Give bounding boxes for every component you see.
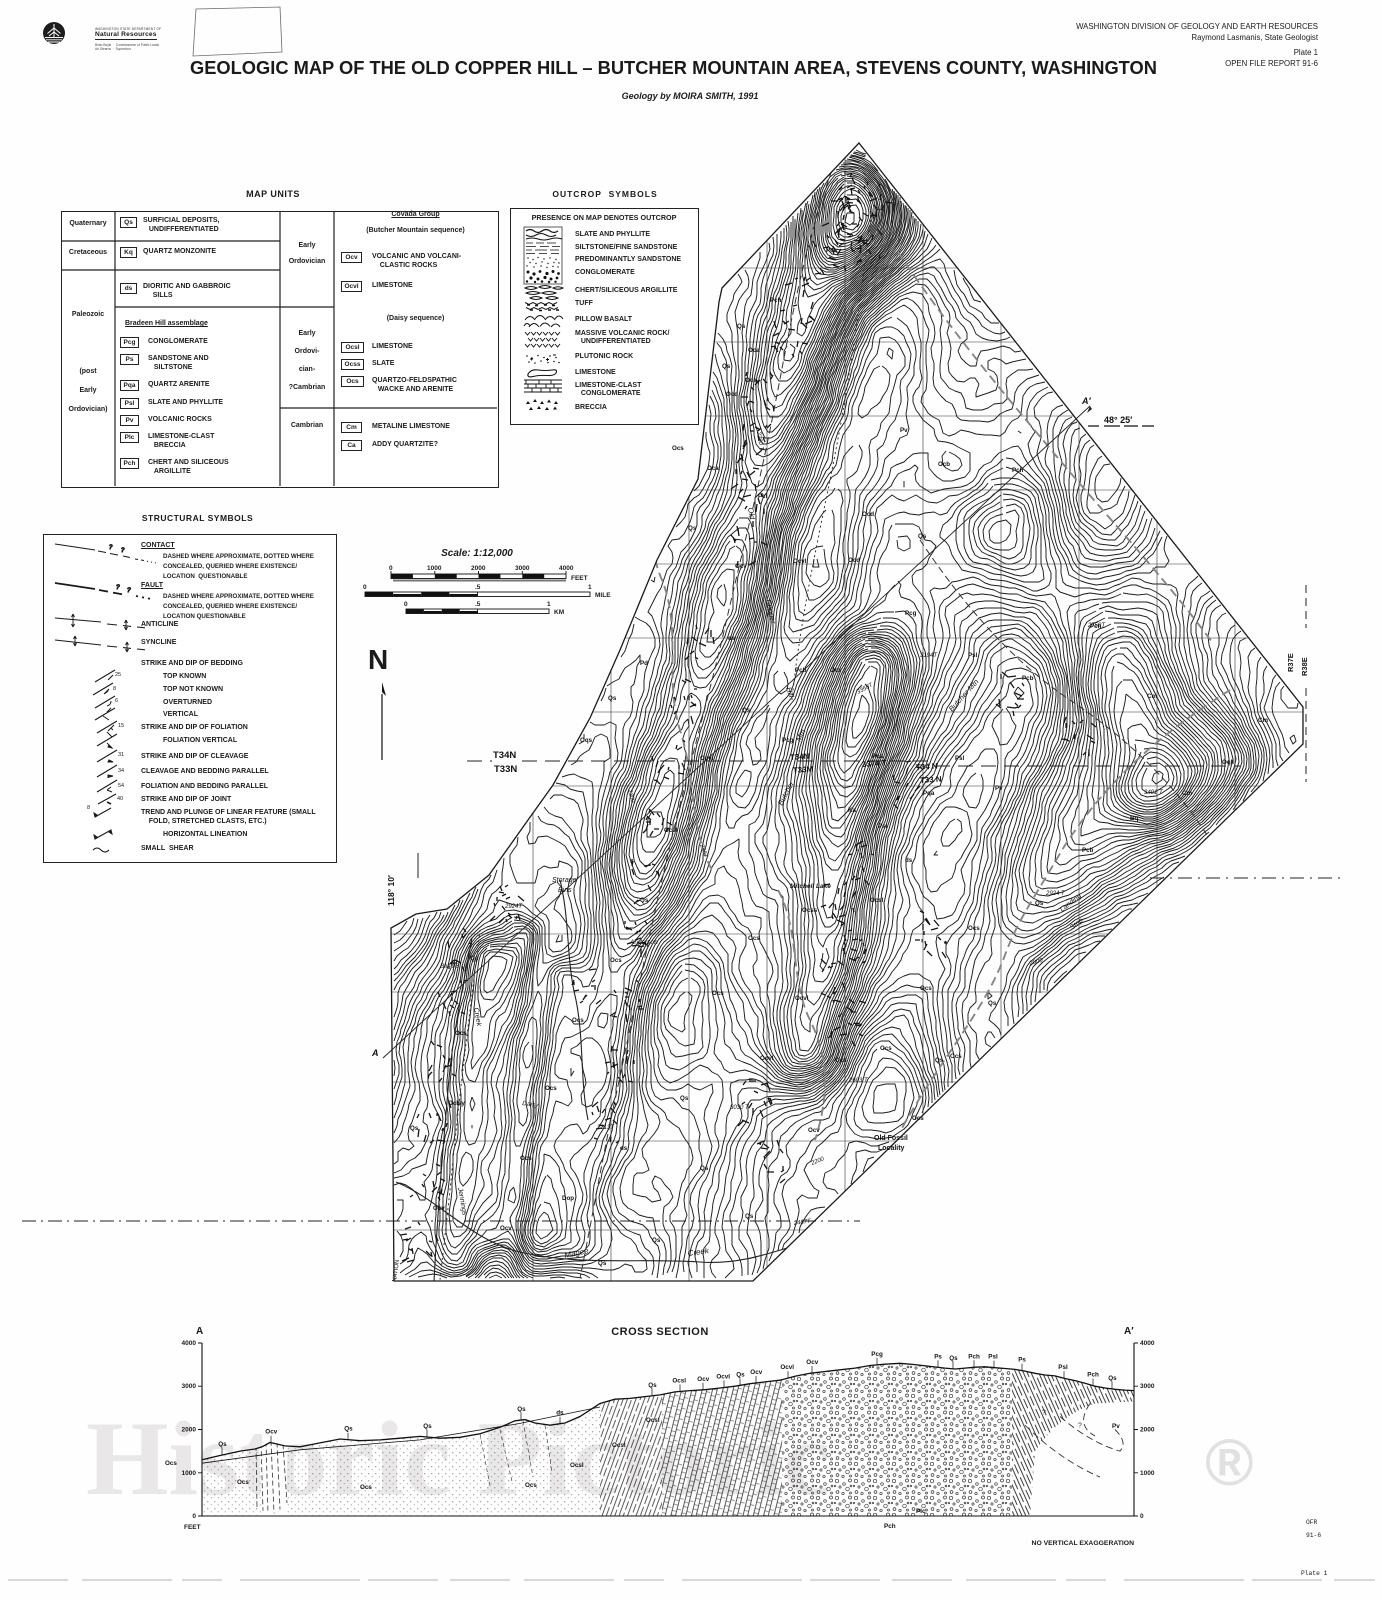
svg-text:3358T: 3358T bbox=[856, 682, 875, 696]
svg-text:Ocsl: Ocsl bbox=[870, 897, 884, 904]
svg-text:3374 T: 3374 T bbox=[862, 758, 888, 769]
svg-text:Pcg: Pcg bbox=[782, 737, 794, 744]
svg-text:Ocv: Ocv bbox=[808, 1127, 820, 1134]
svg-text:0: 0 bbox=[363, 584, 367, 591]
svg-text:8: 8 bbox=[87, 805, 90, 811]
svg-text:T33M: T33M bbox=[793, 765, 814, 775]
svg-text:ds: ds bbox=[556, 1410, 564, 1417]
svg-text:Oca: Oca bbox=[745, 377, 757, 384]
svg-text:Ocs: Ocs bbox=[455, 1030, 467, 1037]
svg-text:Ocs: Ocs bbox=[950, 1053, 962, 1060]
svg-text:Pch: Pch bbox=[770, 297, 782, 304]
svg-text:2000: 2000 bbox=[182, 1427, 197, 1434]
svg-text:Qs: Qs bbox=[722, 363, 731, 370]
svg-text:118° 10′: 118° 10′ bbox=[386, 875, 396, 906]
svg-text:Ocs: Ocs bbox=[237, 1479, 249, 1486]
svg-text:0: 0 bbox=[1140, 1513, 1144, 1520]
svg-text:KM: KM bbox=[554, 609, 564, 616]
svg-text:2000: 2000 bbox=[471, 565, 486, 572]
svg-text:3000: 3000 bbox=[1140, 1383, 1155, 1390]
svg-text:31: 31 bbox=[118, 752, 124, 758]
svg-text:R37E: R37E bbox=[1286, 653, 1295, 672]
svg-text:Ocs: Ocs bbox=[920, 985, 932, 992]
svg-text:Pcl: Pcl bbox=[826, 247, 836, 254]
svg-text:Ocvl: Ocvl bbox=[780, 1364, 794, 1371]
svg-text:Ocv: Ocv bbox=[500, 1225, 512, 1232]
svg-text:Ocs: Ocs bbox=[968, 925, 980, 932]
svg-text:34: 34 bbox=[118, 768, 124, 774]
svg-text:?: ? bbox=[1042, 1409, 1046, 1416]
svg-text:Cm: Cm bbox=[1147, 693, 1157, 700]
svg-text:Ocvl: Ocvl bbox=[664, 827, 678, 834]
svg-text:Locality: Locality bbox=[878, 1145, 905, 1152]
svg-text:1: 1 bbox=[588, 584, 592, 591]
svg-text:Qs: Qs bbox=[949, 1355, 958, 1362]
svg-text:A′: A′ bbox=[1081, 396, 1091, 406]
svg-text:Ocvl: Ocvl bbox=[700, 755, 714, 762]
svg-text:?: ? bbox=[116, 584, 120, 591]
svg-text:Ocv: Ocv bbox=[830, 667, 842, 674]
svg-text:Pd: Pd bbox=[640, 660, 648, 667]
svg-text:Ocvi: Ocvi bbox=[795, 995, 809, 1002]
svg-text:25: 25 bbox=[115, 672, 121, 678]
svg-text:Storage: Storage bbox=[552, 877, 577, 884]
svg-text:Ocs: Ocs bbox=[748, 935, 760, 942]
svg-text:Qs: Qs bbox=[344, 1426, 353, 1433]
svg-text:Psl: Psl bbox=[1058, 1364, 1068, 1371]
svg-text:Ps: Ps bbox=[1018, 1357, 1026, 1364]
svg-text:Qs: Qs bbox=[470, 955, 479, 962]
svg-text:Pch: Pch bbox=[884, 1523, 896, 1530]
svg-text:Ocs: Ocs bbox=[525, 1482, 537, 1489]
svg-text:3401 T: 3401 T bbox=[1144, 790, 1164, 796]
svg-text:15: 15 bbox=[118, 723, 124, 729]
svg-text:Ocs: Ocs bbox=[912, 1115, 924, 1122]
svg-text:Cm: Cm bbox=[1258, 717, 1268, 724]
svg-text:Cm: Cm bbox=[1182, 790, 1192, 797]
svg-text:2924T: 2924T bbox=[504, 904, 523, 910]
svg-text:2758T: 2758T bbox=[1087, 623, 1106, 629]
svg-text:Pcb: Pcb bbox=[1022, 675, 1034, 682]
svg-text:Psl: Psl bbox=[878, 823, 888, 830]
svg-text:?: ? bbox=[109, 545, 113, 551]
svg-text:Qs: Qs bbox=[410, 1125, 419, 1132]
svg-text:Ocs: Ocs bbox=[572, 1017, 584, 1024]
svg-text:Pqa: Pqa bbox=[923, 790, 935, 797]
svg-text:Qs: Qs bbox=[680, 1095, 689, 1102]
svg-text:3030 T: 3030 T bbox=[730, 1105, 750, 1111]
svg-text:Oca: Oca bbox=[748, 347, 760, 354]
svg-text:Ocv: Ocv bbox=[806, 1359, 818, 1366]
svg-text:Pcl: Pcl bbox=[758, 493, 768, 500]
svg-text:Pcb: Pcb bbox=[795, 667, 807, 674]
svg-text:Ocs: Ocs bbox=[165, 1460, 177, 1467]
svg-text:Qs: Qs bbox=[700, 1165, 709, 1172]
svg-text:2924 T: 2924 T bbox=[1045, 891, 1066, 897]
svg-text:Qs: Qs bbox=[598, 1260, 607, 1267]
svg-text:Mitchell Lake: Mitchell Lake bbox=[790, 883, 831, 890]
svg-text:1000: 1000 bbox=[1140, 1470, 1155, 1477]
svg-text:Oclsy: Oclsy bbox=[448, 1100, 465, 1107]
svg-text:T33 N: T33 N bbox=[920, 774, 943, 785]
svg-text:Ocs: Ocs bbox=[545, 1085, 557, 1092]
svg-text:Qs: Qs bbox=[935, 1057, 944, 1064]
svg-text:40: 40 bbox=[117, 796, 123, 802]
svg-text:T34N: T34N bbox=[790, 752, 810, 762]
svg-text:0: 0 bbox=[192, 1513, 196, 1520]
svg-text:Old Fossil: Old Fossil bbox=[874, 1135, 908, 1142]
svg-text:Ocv: Ocv bbox=[697, 1376, 709, 1383]
svg-text:Psl: Psl bbox=[968, 652, 978, 659]
svg-text:2603 T: 2603 T bbox=[848, 1078, 869, 1084]
svg-text:T34 N: T34 N bbox=[916, 761, 939, 772]
svg-text:Ocv: Ocv bbox=[433, 1205, 445, 1212]
svg-text:T34N: T34N bbox=[493, 750, 516, 761]
svg-text:Qs: Qs bbox=[688, 525, 697, 532]
svg-text:6: 6 bbox=[115, 698, 118, 704]
svg-text:Qs: Qs bbox=[1035, 900, 1044, 907]
svg-text:Daisy: Daisy bbox=[522, 1100, 540, 1109]
svg-text:Ocs: Ocs bbox=[835, 1057, 847, 1064]
svg-text:Ocs: Ocs bbox=[360, 1484, 372, 1491]
svg-text:Qs: Qs bbox=[608, 695, 617, 702]
svg-text:Pv: Pv bbox=[1112, 1423, 1120, 1430]
svg-text:Ocd: Ocd bbox=[726, 391, 738, 398]
svg-text:?: ? bbox=[121, 548, 125, 554]
svg-text:Ocb: Ocb bbox=[938, 461, 950, 468]
svg-text:Anderson: Anderson bbox=[629, 939, 658, 946]
svg-text:54: 54 bbox=[118, 783, 124, 789]
svg-text:4000: 4000 bbox=[1140, 1340, 1155, 1347]
svg-text:Ocs: Ocs bbox=[880, 1045, 892, 1052]
svg-text:.5: .5 bbox=[475, 584, 481, 591]
svg-text:0: 0 bbox=[389, 565, 393, 572]
svg-text:Ocsl: Ocsl bbox=[570, 1462, 584, 1469]
svg-text:ds: ds bbox=[905, 857, 913, 864]
svg-text:Qs: Qs bbox=[736, 1371, 745, 1378]
svg-text:Ocv: Ocv bbox=[265, 1429, 277, 1436]
svg-text:Ocs: Ocs bbox=[712, 990, 724, 997]
svg-text:Pcg: Pcg bbox=[905, 610, 917, 617]
svg-text:1: 1 bbox=[547, 601, 551, 608]
svg-text:3000: 3000 bbox=[515, 565, 530, 572]
svg-text:Ocvl: Ocvl bbox=[760, 1055, 774, 1062]
svg-text:Ocvl: Ocvl bbox=[716, 1374, 730, 1381]
svg-text:2000: 2000 bbox=[1140, 1427, 1155, 1434]
svg-text:FEET: FEET bbox=[184, 1524, 201, 1531]
svg-text:Ocv: Ocv bbox=[750, 1369, 762, 1376]
svg-text:FEET: FEET bbox=[571, 575, 588, 582]
svg-text:A: A bbox=[371, 1048, 379, 1058]
svg-text:ds: ds bbox=[728, 635, 736, 642]
svg-text:Qs: Qs bbox=[745, 1213, 754, 1220]
svg-text:4000: 4000 bbox=[182, 1340, 197, 1347]
svg-text:Ocs: Ocs bbox=[672, 445, 684, 452]
svg-text:.5: .5 bbox=[475, 601, 481, 608]
svg-text:Qs: Qs bbox=[988, 1000, 997, 1007]
svg-text:2313T: 2313T bbox=[596, 1125, 615, 1131]
svg-text:Ocsl: Ocsl bbox=[646, 1417, 660, 1424]
svg-text:Qs: Qs bbox=[640, 897, 649, 904]
svg-text:Plc: Plc bbox=[916, 1508, 926, 1515]
svg-text:1000: 1000 bbox=[427, 565, 442, 572]
svg-text:8: 8 bbox=[113, 686, 116, 692]
svg-text:Bins: Bins bbox=[558, 887, 572, 894]
svg-text:Ka: Ka bbox=[848, 807, 856, 814]
svg-text:Oqll: Oqll bbox=[1222, 759, 1234, 766]
svg-text:Ocd: Ocd bbox=[848, 557, 860, 564]
svg-text:Qs: Qs bbox=[918, 533, 927, 540]
svg-text:48° 25′: 48° 25′ bbox=[1104, 415, 1132, 425]
svg-text:Ocd: Ocd bbox=[862, 511, 874, 518]
svg-text:Pch: Pch bbox=[1087, 1372, 1099, 1379]
svg-text:4000: 4000 bbox=[559, 565, 574, 572]
svg-text:Qs: Qs bbox=[517, 1406, 526, 1413]
svg-text:Ocss: Ocss bbox=[802, 907, 818, 914]
svg-text:Ocs: Ocs bbox=[520, 1155, 532, 1162]
svg-text:Ocs: Ocs bbox=[610, 957, 622, 964]
svg-text:Jennings: Jennings bbox=[456, 1186, 468, 1216]
svg-text:Pcb: Pcb bbox=[1082, 847, 1094, 854]
svg-text:Pv: Pv bbox=[995, 785, 1003, 792]
svg-text:3000: 3000 bbox=[182, 1383, 197, 1390]
svg-text:Bq: Bq bbox=[1130, 815, 1138, 822]
svg-text:Ps: Ps bbox=[934, 1353, 942, 1360]
svg-text:Qs: Qs bbox=[423, 1423, 432, 1430]
svg-text:?: ? bbox=[127, 587, 131, 594]
svg-text:BM 96: BM 96 bbox=[440, 963, 459, 970]
svg-text:Ocvl: Ocvl bbox=[793, 558, 807, 565]
svg-text:Qs: Qs bbox=[1108, 1375, 1117, 1382]
svg-text:3194T: 3194T bbox=[920, 653, 938, 659]
svg-text:2800: 2800 bbox=[1028, 958, 1044, 967]
svg-text:Oqs: Oqs bbox=[580, 737, 593, 744]
svg-text:Qs: Qs bbox=[742, 707, 751, 714]
svg-text:R38E: R38E bbox=[1300, 657, 1309, 676]
svg-text:2967: 2967 bbox=[698, 843, 709, 859]
svg-text:Qs: Qs bbox=[652, 1237, 661, 1244]
svg-text:Qs: Qs bbox=[218, 1441, 227, 1448]
svg-text:Pch: Pch bbox=[968, 1353, 980, 1360]
svg-text:Ocsl: Ocsl bbox=[672, 1377, 686, 1384]
svg-text:0: 0 bbox=[404, 601, 408, 608]
svg-text:Pv: Pv bbox=[900, 427, 908, 434]
svg-text:T33N: T33N bbox=[494, 764, 517, 775]
svg-text:Hill: Hill bbox=[784, 686, 796, 699]
svg-text:Dop: Dop bbox=[562, 1195, 574, 1202]
svg-text:MILE: MILE bbox=[595, 592, 611, 599]
svg-text:Oca: Oca bbox=[707, 465, 719, 472]
svg-text:Pch: Pch bbox=[1012, 467, 1024, 474]
svg-text:?: ? bbox=[1078, 1422, 1082, 1429]
svg-text:Qs: Qs bbox=[737, 323, 746, 330]
svg-text:Pcg: Pcg bbox=[871, 1351, 883, 1358]
svg-text:Psl: Psl bbox=[955, 755, 965, 762]
svg-text:Ocsl: Ocsl bbox=[612, 1442, 626, 1449]
svg-text:Qs: Qs bbox=[648, 1382, 657, 1389]
svg-text:Ocv: Ocv bbox=[735, 563, 747, 570]
svg-text:ds: ds bbox=[620, 1145, 628, 1152]
svg-text:Creek: Creek bbox=[687, 1246, 710, 1258]
svg-text:1000: 1000 bbox=[182, 1470, 197, 1477]
svg-text:Psl: Psl bbox=[988, 1354, 998, 1361]
svg-text:Old: Old bbox=[746, 507, 757, 521]
